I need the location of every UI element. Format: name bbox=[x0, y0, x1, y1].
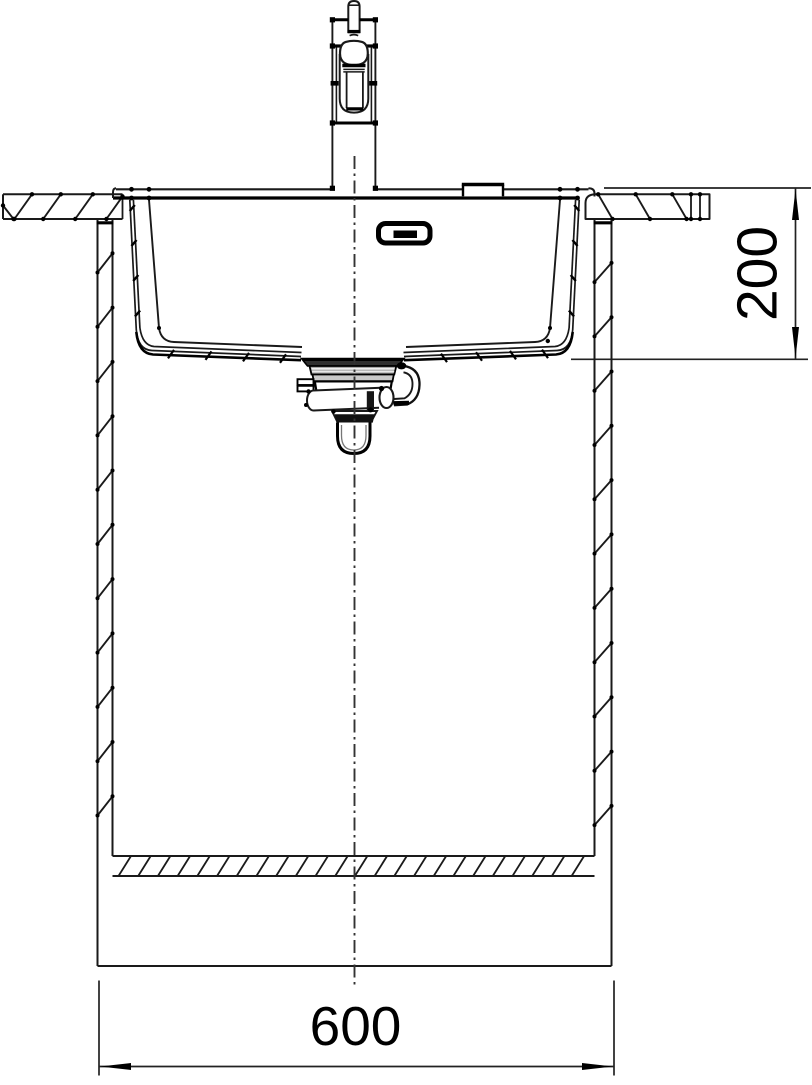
svg-text:600: 600 bbox=[310, 995, 402, 1057]
svg-text:200: 200 bbox=[726, 226, 790, 321]
